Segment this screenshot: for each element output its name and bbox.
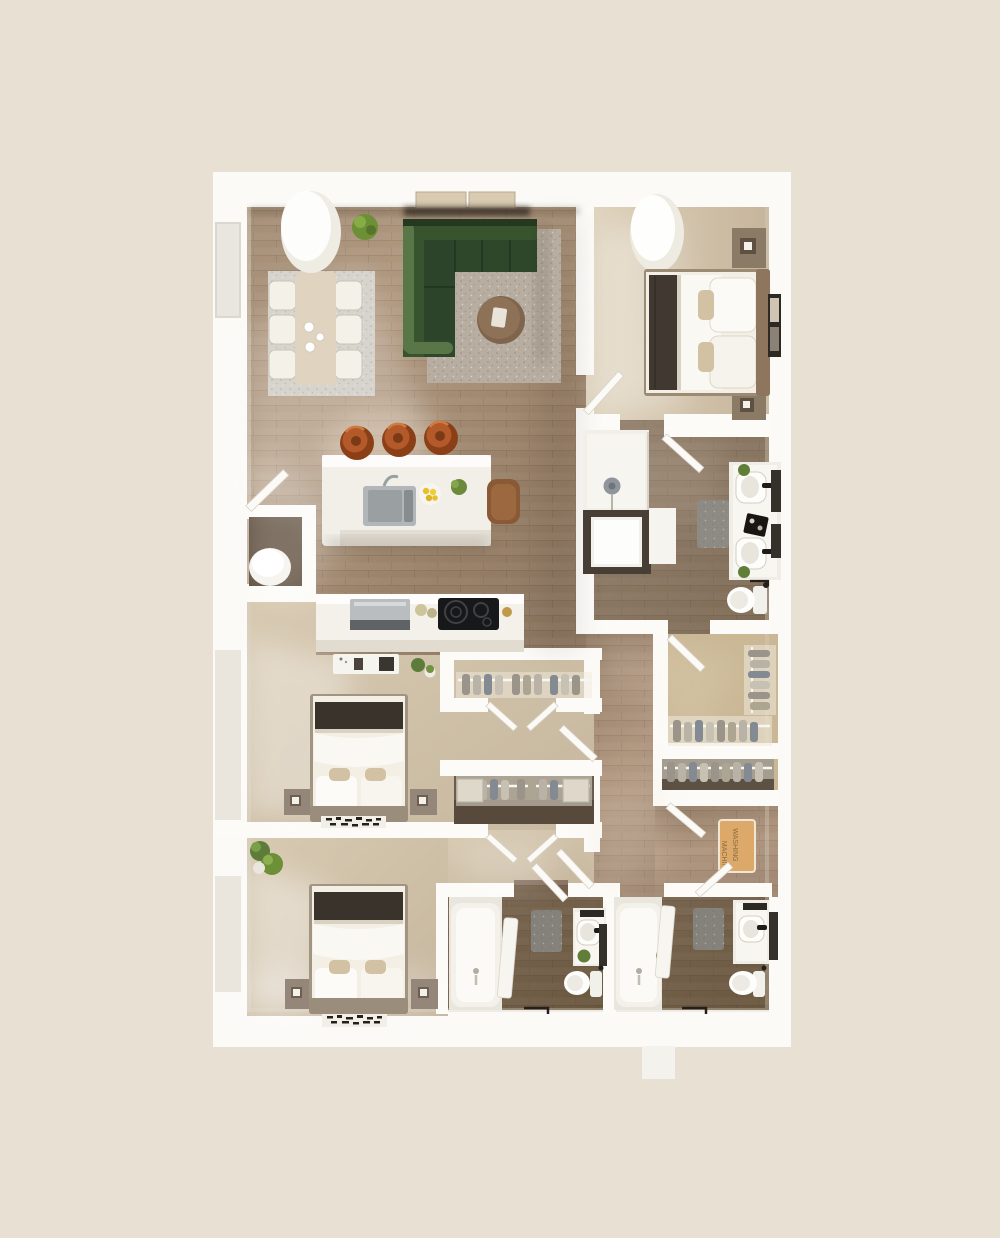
svg-text:WASHING: WASHING [731, 828, 738, 861]
